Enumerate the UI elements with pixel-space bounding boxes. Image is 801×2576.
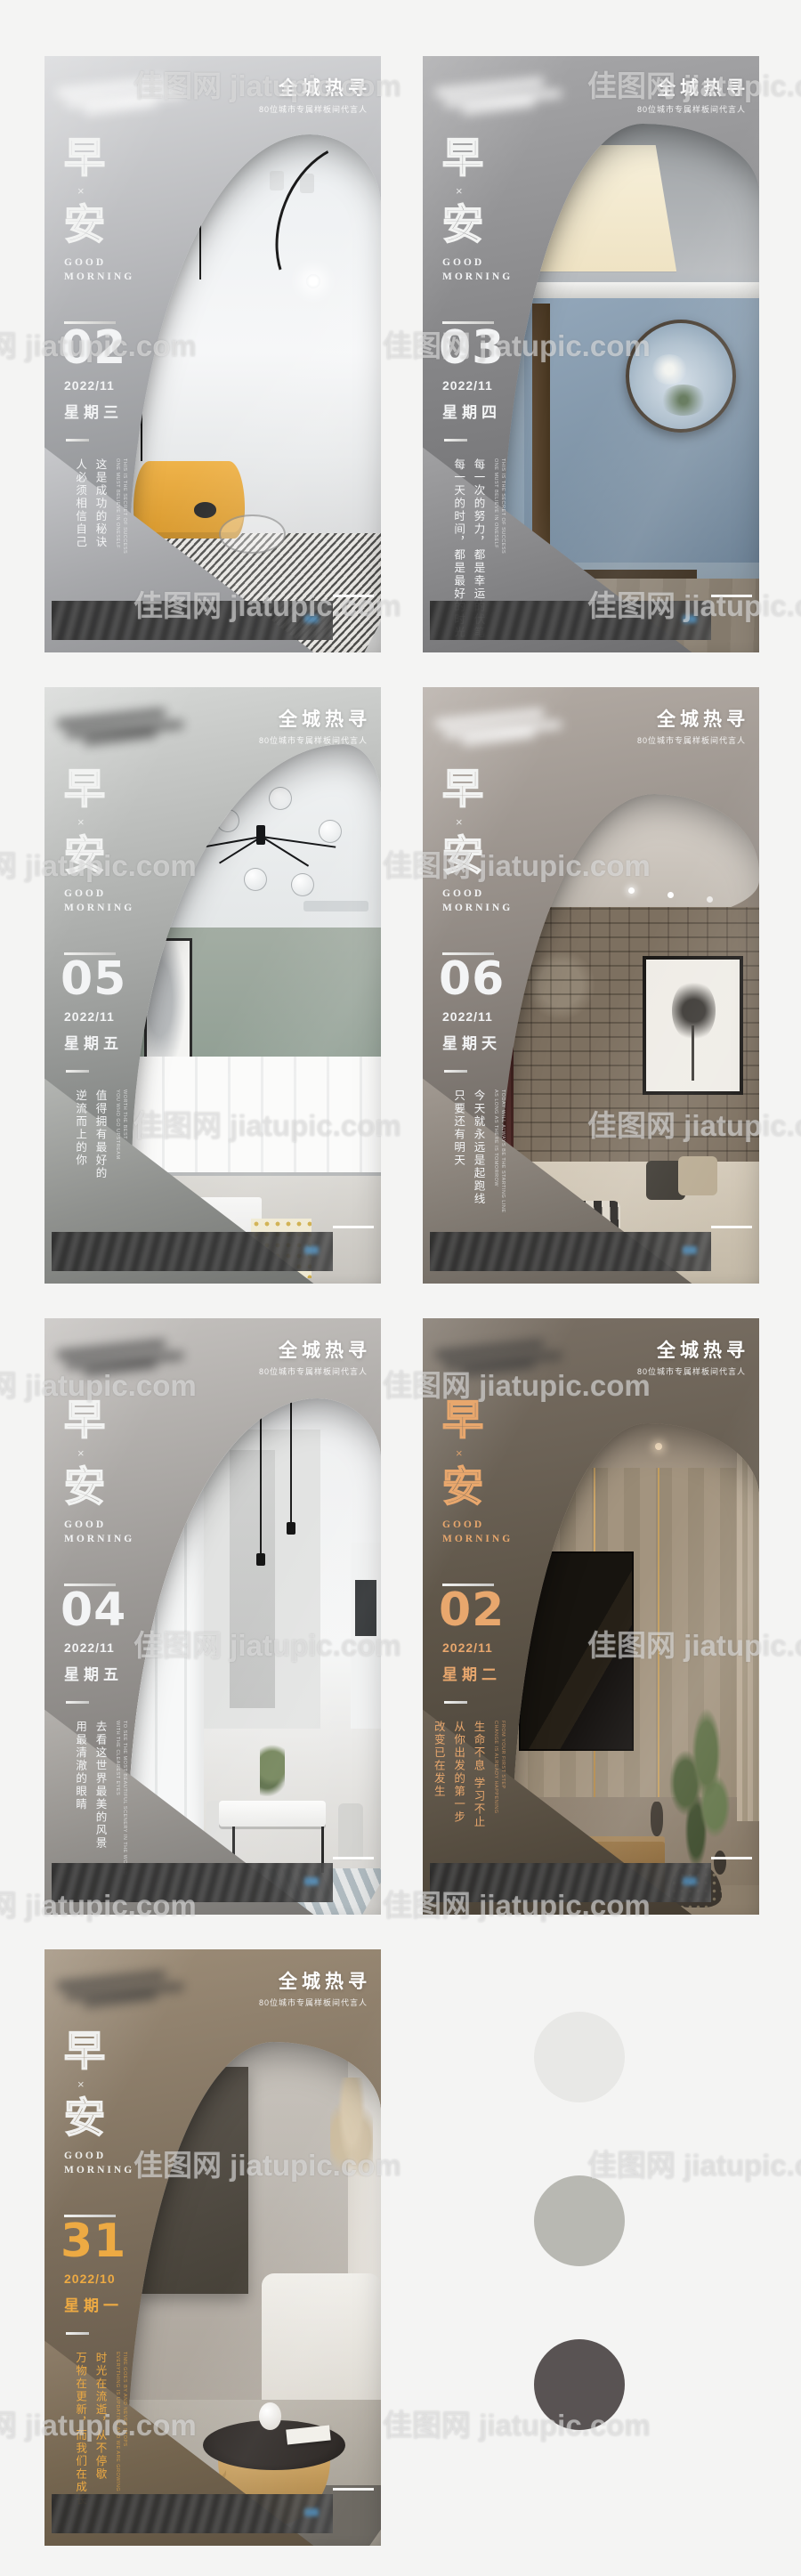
date-yearmonth: 2022/11 bbox=[442, 1640, 493, 1655]
quote-english-line: TO SEE THE MOST BEAUTIFUL SCENERY IN THE… bbox=[121, 1721, 128, 1875]
campaign-title: 全城热寻 bbox=[637, 74, 749, 101]
greeting-block: 早 × 安 GOOD MORNING bbox=[442, 767, 514, 913]
quote-line: 只要还有明天 bbox=[452, 1090, 465, 1167]
ceiling-spotlights bbox=[270, 171, 284, 190]
good-label: GOOD bbox=[64, 2151, 135, 2161]
campaign-subtitle: 80位城市专属样板间代言人 bbox=[259, 1365, 368, 1377]
contact-info-blurred bbox=[430, 1863, 711, 1902]
quote-line: 万物在更新，而我们在成长 bbox=[74, 2352, 86, 2507]
wood-door-frame bbox=[532, 304, 550, 563]
poster-good-morning-4: 全城热寻 80位城市专属样板间代言人 早 × 安 GOOD MORNING 06… bbox=[423, 687, 759, 1284]
doorway bbox=[230, 1450, 275, 1708]
developer-logo-blurred bbox=[435, 77, 569, 111]
an-character: 安 bbox=[442, 834, 514, 877]
campaign-title: 全城热寻 bbox=[637, 705, 749, 732]
divider-short bbox=[66, 439, 89, 441]
date-weekday: 星期五 bbox=[64, 1031, 123, 1053]
zao-character: 早 bbox=[442, 1398, 514, 1441]
pendant-light bbox=[260, 1398, 262, 1553]
campaign-block: 全城热寻 80位城市专属样板间代言人 bbox=[259, 1336, 367, 1377]
greeting-block: 早 × 安 GOOD MORNING bbox=[442, 136, 514, 282]
contact-info-blurred bbox=[52, 1863, 333, 1902]
morning-label: MORNING bbox=[442, 271, 514, 282]
ac-vent bbox=[303, 901, 368, 911]
multiply-sign: × bbox=[77, 815, 135, 829]
pampas-grass bbox=[330, 2078, 374, 2193]
developer-logo-blurred bbox=[57, 77, 190, 111]
dark-art-panel bbox=[139, 2067, 248, 2294]
divider-short bbox=[444, 439, 467, 441]
ceiling-downlight bbox=[655, 1443, 662, 1450]
campaign-subtitle: 80位城市专属样板间代言人 bbox=[637, 1365, 746, 1377]
developer-logo-blurred bbox=[435, 1340, 569, 1373]
campaign-title: 全城热寻 bbox=[259, 1967, 371, 1994]
campaign-block: 全城热寻 80位城市专属样板间代言人 bbox=[637, 705, 745, 746]
zao-character: 早 bbox=[64, 136, 135, 179]
campaign-subtitle: 80位城市专属样板间代言人 bbox=[637, 734, 746, 746]
greeting-block: 早 × 安 GOOD MORNING bbox=[442, 1398, 514, 1544]
divider-short bbox=[444, 1701, 467, 1704]
campaign-subtitle: 80位城市专属样板间代言人 bbox=[259, 734, 368, 746]
campaign-subtitle: 80位城市专属样板间代言人 bbox=[259, 1997, 368, 2008]
stock-watermark-text: 佳图网 jiatupic.com bbox=[587, 2142, 801, 2184]
quote-english-line: WORTH THE BEST bbox=[121, 1090, 128, 1160]
good-label: GOOD bbox=[442, 257, 514, 268]
oven-cabinet bbox=[351, 1543, 381, 1729]
date-day: 05 bbox=[61, 956, 126, 1002]
campaign-block: 全城热寻 80位城市专属样板间代言人 bbox=[637, 74, 745, 115]
quote-english-line: CHANGE IS ALREADY HAPPENING bbox=[492, 1721, 499, 1813]
morning-label: MORNING bbox=[442, 1534, 514, 1544]
palette-swatch-mid-gray bbox=[534, 2175, 625, 2266]
divider-short bbox=[66, 1070, 89, 1073]
date-weekday: 星期四 bbox=[442, 400, 501, 422]
glass-globe bbox=[216, 809, 239, 832]
date-day: 02 bbox=[61, 325, 126, 371]
multiply-sign: × bbox=[456, 184, 514, 198]
poster-good-morning-5: 全城热寻 80位城市专属样板间代言人 早 × 安 GOOD MORNING 04… bbox=[44, 1318, 381, 1915]
good-label: GOOD bbox=[64, 1519, 135, 1530]
date-day: 02 bbox=[439, 1587, 505, 1633]
date-day: 06 bbox=[439, 956, 505, 1002]
poster-good-morning-7: 全城热寻 80位城市专属样板间代言人 早 × 安 GOOD MORNING 31… bbox=[44, 1949, 381, 2546]
beige-curtain bbox=[737, 1448, 759, 1822]
pillows bbox=[678, 1156, 717, 1195]
quote-english: FROM YOUR FIRST STEP CHANGE IS ALREADY H… bbox=[492, 1721, 507, 1813]
quote-english-line: THIS IS THE SECRET OF SUCCESS bbox=[499, 458, 506, 554]
poster-good-morning-6: 全城热寻 80位城市专属样板间代言人 早 × 安 GOOD MORNING 02… bbox=[423, 1318, 759, 1915]
side-stool bbox=[194, 502, 217, 517]
date-yearmonth: 2022/11 bbox=[64, 1009, 115, 1024]
pendant-cord bbox=[199, 134, 201, 279]
date-yearmonth: 2022/11 bbox=[442, 1009, 493, 1024]
quote-line: 逆流而上的你 bbox=[74, 1090, 86, 1167]
multiply-sign: × bbox=[456, 815, 514, 829]
poster-good-morning-2: 全城热寻 80位城市专属样板间代言人 早 × 安 GOOD MORNING 03… bbox=[423, 56, 759, 652]
pendant-light bbox=[290, 1398, 292, 1522]
quote-english: THIS IS THE SECRET OF SUCCESS ONE MUST B… bbox=[492, 458, 507, 554]
quote-english-line: FROM YOUR FIRST STEP bbox=[499, 1721, 506, 1813]
good-label: GOOD bbox=[64, 257, 135, 268]
floor-lamp bbox=[141, 373, 142, 461]
greeting-block: 早 × 安 GOOD MORNING bbox=[64, 136, 135, 282]
quote-english: TIME GOES BY AND NEVER STOPS EVERYTHING … bbox=[114, 2352, 129, 2491]
quote-english-line: EVERYTHING IS UPDATING AND WE ARE GROWIN… bbox=[114, 2352, 121, 2491]
campaign-title: 全城热寻 bbox=[259, 705, 371, 732]
glass-globe bbox=[319, 820, 342, 843]
greeting-block: 早 × 安 GOOD MORNING bbox=[64, 767, 135, 913]
tree-artwork bbox=[643, 956, 744, 1096]
quote-english-line: TIME GOES BY AND NEVER STOPS bbox=[121, 2352, 128, 2491]
campaign-block: 全城热寻 80位城市专属样板间代言人 bbox=[259, 705, 367, 746]
date-yearmonth: 2022/10 bbox=[64, 2272, 116, 2286]
poster-good-morning-3: 全城热寻 80位城市专属样板间代言人 早 × 安 GOOD MORNING 05… bbox=[44, 687, 381, 1284]
zao-character: 早 bbox=[64, 2029, 135, 2072]
quote-line: 值得拥有最好的 bbox=[93, 1090, 106, 1180]
table-plant bbox=[260, 1745, 285, 1796]
lamp-bulb bbox=[306, 274, 320, 288]
morning-label: MORNING bbox=[64, 1534, 135, 1544]
campaign-block: 全城热寻 80位城市专属样板间代言人 bbox=[637, 1336, 745, 1377]
multiply-sign: × bbox=[77, 1446, 135, 1460]
poster-sheet: 全城热寻 80位城市专属样板间代言人 早 × 安 GOOD MORNING 02… bbox=[0, 0, 801, 2576]
campaign-title: 全城热寻 bbox=[259, 74, 371, 101]
good-label: GOOD bbox=[64, 888, 135, 899]
contact-info-blurred bbox=[52, 601, 333, 640]
white-wardrobe bbox=[128, 1398, 204, 1843]
date-weekday: 星期二 bbox=[442, 1662, 501, 1684]
bottom-accent-line bbox=[333, 2488, 374, 2491]
morning-label: MORNING bbox=[64, 2165, 135, 2175]
television bbox=[519, 1551, 634, 1752]
palette-swatch-light-gray bbox=[534, 2012, 625, 2102]
contact-info-blurred bbox=[430, 601, 711, 640]
developer-logo-blurred bbox=[57, 1971, 190, 2005]
contact-info-blurred bbox=[430, 1232, 711, 1271]
date-weekday: 星期天 bbox=[442, 1031, 501, 1053]
campaign-subtitle: 80位城市专属样板间代言人 bbox=[259, 103, 368, 115]
good-label: GOOD bbox=[442, 888, 514, 899]
good-morning-label: GOOD MORNING bbox=[442, 888, 514, 913]
bottom-accent-line bbox=[711, 1857, 752, 1859]
date-weekday: 星期一 bbox=[64, 2293, 123, 2315]
multiply-sign: × bbox=[456, 1446, 514, 1460]
zao-character: 早 bbox=[64, 1398, 135, 1441]
an-character: 安 bbox=[64, 203, 135, 246]
good-morning-label: GOOD MORNING bbox=[442, 257, 514, 282]
zao-character: 早 bbox=[442, 767, 514, 810]
campaign-block: 全城热寻 80位城市专属样板间代言人 bbox=[259, 74, 367, 115]
quote-english: THIS IS THE SECRET OF SUCCESS ONE MUST B… bbox=[114, 458, 129, 554]
developer-logo-blurred bbox=[57, 1340, 190, 1373]
zao-character: 早 bbox=[64, 767, 135, 810]
zao-character: 早 bbox=[442, 136, 514, 179]
quote-line: 改变已在发生 bbox=[432, 1721, 444, 1798]
quote-english-line: ONE MUST BELIEVE IN ONESELF bbox=[114, 458, 121, 554]
good-morning-label: GOOD MORNING bbox=[442, 1519, 514, 1544]
date-day: 31 bbox=[61, 2218, 126, 2264]
date-weekday: 星期五 bbox=[64, 1662, 123, 1684]
quote-line: 这是成功的秘诀 bbox=[93, 458, 106, 549]
date-day: 03 bbox=[439, 325, 505, 371]
an-character: 安 bbox=[64, 1465, 135, 1508]
good-morning-label: GOOD MORNING bbox=[64, 257, 135, 282]
moon-circle-artwork bbox=[626, 320, 736, 433]
multiply-sign: × bbox=[77, 2078, 135, 2091]
morning-label: MORNING bbox=[442, 903, 514, 913]
an-character: 安 bbox=[64, 834, 135, 877]
quote-english-line: ONE MUST BELIEVE IN ONESELF bbox=[492, 458, 499, 554]
quote-line: 生命不息 学习不止 bbox=[472, 1721, 484, 1828]
morning-label: MORNING bbox=[64, 903, 135, 913]
good-morning-label: GOOD MORNING bbox=[64, 2151, 135, 2175]
divider-short bbox=[66, 2332, 89, 2335]
quote-line: 时光在流逝，从不停歇 bbox=[93, 2352, 106, 2481]
skylight bbox=[527, 145, 676, 272]
quote-english-line: WITH THE CLEAREST EYES bbox=[114, 1721, 121, 1875]
dining-table bbox=[219, 1801, 325, 1827]
quote-line: 今天就永远是起跑线 bbox=[472, 1090, 484, 1206]
arc-lamp bbox=[252, 134, 381, 328]
multiply-sign: × bbox=[77, 184, 135, 198]
bottom-accent-line bbox=[711, 1226, 752, 1228]
poster-good-morning-1: 全城热寻 80位城市专属样板间代言人 早 × 安 GOOD MORNING 02… bbox=[44, 56, 381, 652]
developer-logo-blurred bbox=[435, 709, 569, 742]
quote-line: 人必须相信自己 bbox=[74, 458, 86, 549]
bottom-accent-line bbox=[333, 595, 374, 597]
quote-line: 去看这世界最美的风景 bbox=[93, 1721, 106, 1850]
quote-english: TO SEE THE MOST BEAUTIFUL SCENERY IN THE… bbox=[114, 1721, 129, 1875]
an-character: 安 bbox=[64, 2096, 135, 2139]
good-morning-label: GOOD MORNING bbox=[64, 888, 135, 913]
date-yearmonth: 2022/11 bbox=[64, 378, 115, 393]
palette-swatch-dark-gray bbox=[534, 2339, 625, 2430]
greeting-block: 早 × 安 GOOD MORNING bbox=[64, 1398, 135, 1544]
morning-label: MORNING bbox=[64, 271, 135, 282]
quote-english-line: AS LONG AS THERE IS TOMORROW bbox=[492, 1090, 499, 1213]
quote-english: TODAY WILL ALWAYS BE THE STARTING LINE A… bbox=[492, 1090, 507, 1213]
quote-english-line: THIS IS THE SECRET OF SUCCESS bbox=[121, 458, 128, 554]
bottom-accent-line bbox=[333, 1857, 374, 1859]
quote-english-line: TODAY WILL ALWAYS BE THE STARTING LINE bbox=[499, 1090, 506, 1213]
divider-short bbox=[444, 1070, 467, 1073]
campaign-block: 全城热寻 80位城市专属样板间代言人 bbox=[259, 1967, 367, 2008]
white-sphere-ornament bbox=[259, 2402, 282, 2430]
dark-vase bbox=[651, 1802, 663, 1836]
campaign-title: 全城热寻 bbox=[637, 1336, 749, 1363]
quote-line: 用最清澈的眼睛 bbox=[74, 1721, 86, 1811]
an-character: 安 bbox=[442, 1465, 514, 1508]
divider-short bbox=[66, 1701, 89, 1704]
date-day: 04 bbox=[61, 1587, 126, 1633]
an-character: 安 bbox=[442, 203, 514, 246]
greeting-block: 早 × 安 GOOD MORNING bbox=[64, 2029, 135, 2175]
date-yearmonth: 2022/11 bbox=[64, 1640, 115, 1655]
quote-line: 从你出发的第一步 bbox=[452, 1721, 465, 1824]
good-morning-label: GOOD MORNING bbox=[64, 1519, 135, 1544]
bottom-accent-line bbox=[333, 1226, 374, 1228]
curved-ceiling bbox=[498, 794, 759, 921]
chandelier-hub bbox=[256, 825, 265, 845]
date-weekday: 星期三 bbox=[64, 400, 123, 422]
recessed-lights bbox=[628, 887, 635, 894]
contact-info-blurred bbox=[52, 1232, 333, 1271]
date-yearmonth: 2022/11 bbox=[442, 378, 493, 393]
campaign-title: 全城热寻 bbox=[259, 1336, 371, 1363]
white-sofa bbox=[262, 2273, 381, 2410]
bottom-accent-line bbox=[711, 595, 752, 597]
good-label: GOOD bbox=[442, 1519, 514, 1530]
contact-info-blurred bbox=[52, 2494, 333, 2533]
campaign-subtitle: 80位城市专属样板间代言人 bbox=[637, 103, 746, 115]
quote-english-line: YOU WHO GO UPSTREAM bbox=[114, 1090, 121, 1160]
white-cabinets bbox=[132, 1057, 381, 1175]
ceiling-edge bbox=[501, 282, 759, 298]
quote-english: WORTH THE BEST YOU WHO GO UPSTREAM bbox=[114, 1090, 129, 1160]
developer-logo-blurred bbox=[57, 709, 190, 742]
